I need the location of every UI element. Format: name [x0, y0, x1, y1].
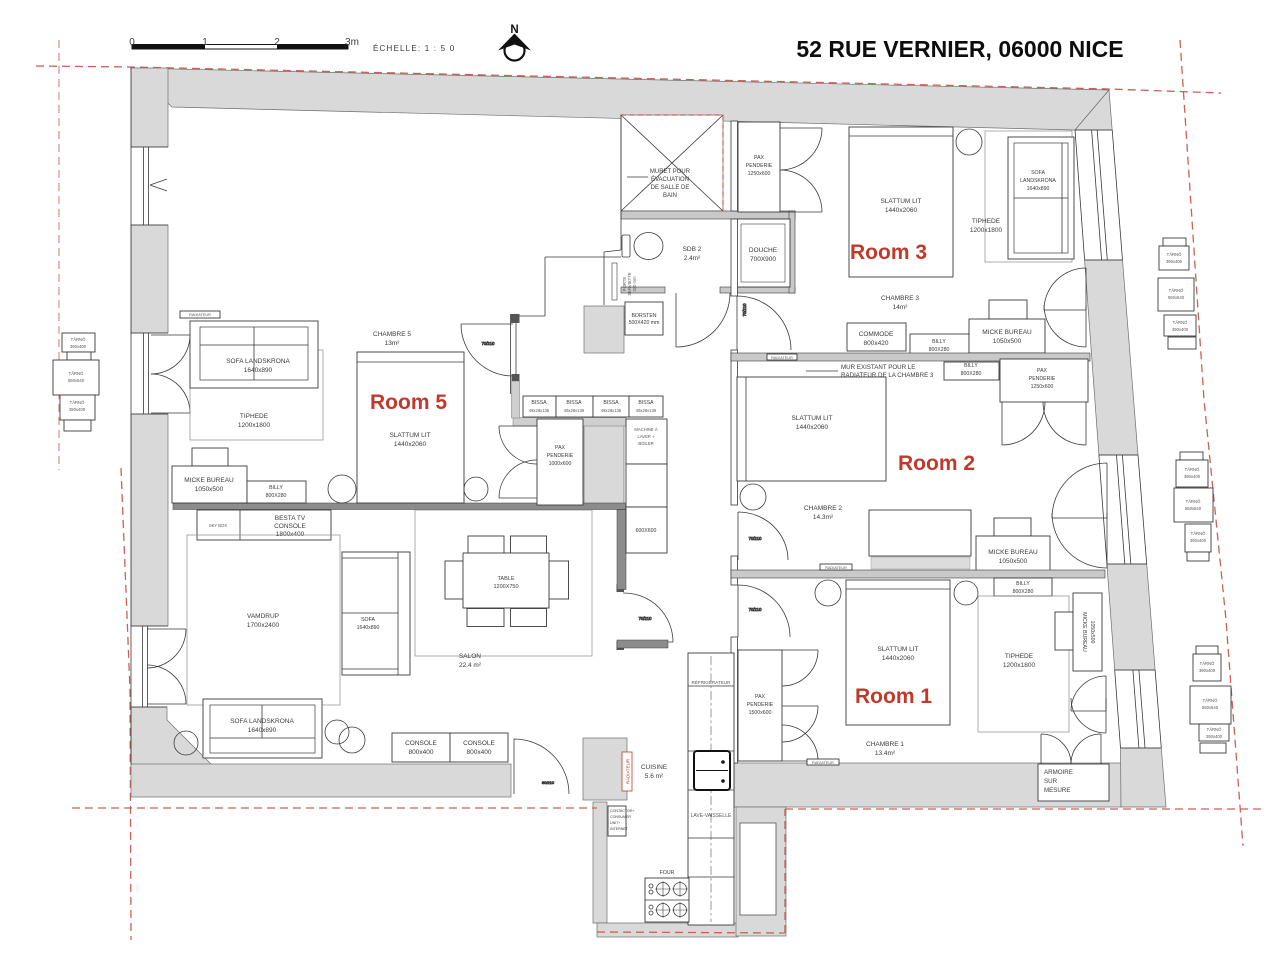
svg-text:TÄRNÖ: TÄRNÖ	[1207, 727, 1222, 732]
svg-text:TÄRNÖ: TÄRNÖ	[1169, 288, 1184, 293]
svg-text:TÄRNÖ: TÄRNÖ	[69, 371, 84, 376]
svg-text:ÉCHELLE: 1 : 5 0: ÉCHELLE: 1 : 5 0	[373, 44, 455, 53]
svg-text:800x420: 800x420	[864, 340, 889, 347]
svg-text:390x400: 390x400	[1166, 259, 1183, 264]
svg-text:BISSA: BISSA	[638, 400, 654, 406]
svg-text:MICKE BUREAU: MICKE BUREAU	[988, 549, 1038, 556]
svg-text:TÄRNÖ: TÄRNÖ	[71, 337, 86, 342]
svg-text:SKY BOX: SKY BOX	[209, 523, 228, 528]
svg-text:TÄRNÖ: TÄRNÖ	[1186, 499, 1201, 504]
svg-text:1250x600: 1250x600	[1031, 384, 1054, 390]
svg-text:70/210: 70/210	[749, 536, 762, 541]
svg-text:SLATTUM LIT: SLATTUM LIT	[877, 646, 918, 653]
svg-text:1000x600: 1000x600	[549, 461, 572, 467]
svg-text:52 RUE VERNIER, 06000 NICE: 52 RUE VERNIER, 06000 NICE	[796, 36, 1123, 62]
svg-text:1440x2060: 1440x2060	[796, 424, 829, 431]
svg-text:MUR EXISTANT POUR LE: MUR EXISTANT POUR LE	[841, 364, 915, 371]
svg-text:MURET POUR: MURET POUR	[650, 169, 691, 175]
svg-text:CUISINE: CUISINE	[641, 764, 668, 771]
svg-text:1640x890: 1640x890	[248, 727, 277, 734]
svg-text:BISSA: BISSA	[566, 400, 582, 406]
svg-text:22.4 m²: 22.4 m²	[459, 662, 482, 669]
svg-text:800x400: 800x400	[467, 749, 492, 756]
svg-text:1200x1800: 1200x1800	[1003, 662, 1036, 669]
svg-text:80/210: 80/210	[542, 780, 555, 785]
svg-text:1200x1800: 1200x1800	[238, 422, 271, 429]
svg-text:0: 0	[129, 37, 135, 48]
svg-text:1800x400: 1800x400	[276, 531, 305, 538]
svg-text:390x400: 390x400	[70, 344, 87, 349]
svg-text:RADIATEUR: RADIATEUR	[812, 761, 834, 765]
svg-text:SLATTUM LIT: SLATTUM LIT	[880, 198, 921, 205]
svg-text:PENDERIE: PENDERIE	[746, 163, 773, 169]
svg-text:BILLY: BILLY	[932, 339, 946, 345]
svg-text:LAVE-VAISSELLE: LAVE-VAISSELLE	[691, 813, 732, 819]
svg-text:BISSA: BISSA	[603, 400, 619, 406]
svg-text:1500x600: 1500x600	[749, 710, 772, 716]
svg-text:PENDERIE: PENDERIE	[747, 702, 774, 708]
svg-text:390x400: 390x400	[1190, 538, 1207, 543]
svg-text:TIPHEDE: TIPHEDE	[972, 218, 1001, 225]
svg-text:MICKE BUREAU: MICKE BUREAU	[982, 329, 1032, 336]
svg-text:1200X750: 1200X750	[493, 584, 518, 590]
svg-text:ÉVACUATION: ÉVACUATION	[651, 176, 689, 183]
svg-text:5.6 m²: 5.6 m²	[645, 773, 664, 780]
svg-text:2.4m²: 2.4m²	[684, 255, 701, 262]
svg-text:14.3m²: 14.3m²	[813, 514, 834, 521]
svg-text:49x28x135: 49x28x135	[636, 408, 657, 413]
svg-text:1050x500: 1050x500	[999, 558, 1028, 565]
svg-text:550x540: 550x540	[1185, 506, 1202, 511]
svg-text:PAX: PAX	[1037, 368, 1048, 374]
svg-text:MICKE BUREAU: MICKE BUREAU	[184, 477, 234, 484]
svg-text:MICKE BUREAU: MICKE BUREAU	[1081, 612, 1087, 652]
svg-text:RADIATEUR: RADIATEUR	[825, 566, 847, 570]
svg-text:70/210: 70/210	[749, 607, 762, 612]
svg-text:800X280: 800X280	[929, 347, 950, 353]
svg-text:CHAMBRE 1: CHAMBRE 1	[866, 741, 904, 748]
svg-text:Room 1: Room 1	[855, 685, 932, 708]
svg-text:1050x500: 1050x500	[1089, 621, 1095, 644]
svg-text:1050x500: 1050x500	[195, 486, 224, 493]
svg-text:CHAMBRE 3: CHAMBRE 3	[881, 295, 919, 302]
svg-text:TÄRNÖ: TÄRNÖ	[1203, 698, 1218, 703]
svg-text:PAX: PAX	[555, 445, 566, 451]
svg-text:14m²: 14m²	[893, 304, 909, 311]
svg-text:BAIN: BAIN	[663, 193, 677, 199]
svg-text:1440x2060: 1440x2060	[885, 207, 918, 214]
svg-text:2: 2	[274, 37, 280, 48]
svg-text:SOFA: SOFA	[1031, 170, 1045, 176]
svg-text:BESTA TV: BESTA TV	[275, 515, 306, 522]
svg-text:MESURE: MESURE	[1044, 787, 1070, 794]
svg-text:SALON: SALON	[459, 653, 481, 660]
svg-text:BILLY: BILLY	[269, 485, 283, 491]
svg-text:LANDSKRONA: LANDSKRONA	[1020, 178, 1056, 184]
svg-text:MACHINE À: MACHINE À	[634, 427, 657, 432]
svg-text:BILLY: BILLY	[1016, 581, 1030, 587]
svg-text:TIPHEDE: TIPHEDE	[240, 413, 269, 420]
svg-text:1: 1	[202, 37, 208, 48]
svg-text:CONSUMER: CONSUMER	[610, 815, 631, 819]
svg-text:SOFA LANDSKRONA: SOFA LANDSKRONA	[226, 358, 290, 365]
svg-text:13.4m²: 13.4m²	[875, 750, 896, 757]
svg-text:800X280: 800X280	[1013, 589, 1034, 595]
svg-text:49x28x135: 49x28x135	[601, 408, 622, 413]
svg-text:390x400: 390x400	[1172, 327, 1189, 332]
svg-text:Room 3: Room 3	[850, 241, 927, 264]
svg-text:Room 2: Room 2	[898, 452, 975, 475]
svg-text:TÄRNÖ: TÄRNÖ	[1167, 252, 1182, 257]
svg-text:1440x2060: 1440x2060	[394, 441, 427, 448]
svg-text:550x540: 550x540	[1202, 705, 1219, 710]
svg-text:SLATTUM LIT: SLATTUM LIT	[389, 432, 430, 439]
svg-text:1440x2060: 1440x2060	[882, 655, 915, 662]
svg-text:SLATTUM LIT: SLATTUM LIT	[791, 415, 832, 422]
svg-text:1640x890: 1640x890	[244, 367, 273, 374]
svg-text:SOFA: SOFA	[361, 617, 375, 623]
svg-text:INTERNET: INTERNET	[610, 827, 629, 831]
svg-text:DE SALLE DE: DE SALLE DE	[651, 185, 690, 191]
svg-text:COMMODE: COMMODE	[859, 331, 894, 338]
svg-text:PAX: PAX	[755, 694, 766, 700]
svg-text:BOILER: BOILER	[638, 441, 653, 446]
svg-text:SOFA LANDSKRONA: SOFA LANDSKRONA	[230, 718, 294, 725]
svg-text:FOUR: FOUR	[660, 870, 675, 876]
svg-text:700X900: 700X900	[750, 256, 776, 263]
svg-text:CONSOLE: CONSOLE	[405, 740, 437, 747]
svg-text:1050x500: 1050x500	[993, 338, 1022, 345]
svg-text:390x400: 390x400	[69, 407, 86, 412]
svg-text:VAMDRUP: VAMDRUP	[247, 613, 279, 620]
svg-text:UNIT+: UNIT+	[610, 821, 620, 825]
svg-text:1250x600: 1250x600	[748, 171, 771, 177]
svg-text:49x28x135: 49x28x135	[564, 408, 585, 413]
svg-text:1640x890: 1640x890	[357, 625, 380, 631]
svg-text:1640x890: 1640x890	[1027, 186, 1050, 192]
svg-text:BILLY: BILLY	[964, 363, 978, 369]
svg-text:BORSTEN: BORSTEN	[631, 313, 656, 319]
svg-text:RADIATEUR: RADIATEUR	[189, 313, 211, 317]
svg-text:390x400: 390x400	[1199, 668, 1216, 673]
svg-text:CONSOLE: CONSOLE	[463, 740, 495, 747]
svg-text:600X600: 600X600	[636, 528, 657, 534]
svg-text:500X420 mm: 500X420 mm	[629, 320, 660, 326]
svg-text:PENDERIE: PENDERIE	[1029, 376, 1056, 382]
svg-text:RÉFRIGÉRATEUR: RÉFRIGÉRATEUR	[692, 679, 732, 685]
svg-text:TÄRNÖ: TÄRNÖ	[1185, 467, 1200, 472]
svg-text:LAVER +: LAVER +	[637, 434, 655, 439]
svg-text:Room 5: Room 5	[370, 391, 447, 414]
svg-text:RADIATEUR: RADIATEUR	[771, 356, 793, 360]
svg-text:70/210: 70/210	[482, 341, 495, 346]
svg-text:PAX: PAX	[754, 155, 765, 161]
svg-text:BISSA: BISSA	[531, 400, 547, 406]
svg-text:390x400: 390x400	[1206, 734, 1223, 739]
svg-text:TÄRNÖ: TÄRNÖ	[70, 400, 85, 405]
svg-text:550x540: 550x540	[1168, 295, 1185, 300]
svg-text:CONSOLE: CONSOLE	[274, 523, 306, 530]
svg-text:PENDERIE: PENDERIE	[547, 453, 574, 459]
svg-text:TÄRNÖ: TÄRNÖ	[1200, 661, 1215, 666]
svg-text:SDB 2: SDB 2	[683, 246, 702, 253]
svg-text:1700x2400: 1700x2400	[247, 622, 280, 629]
svg-text:800X280: 800X280	[961, 371, 982, 377]
svg-text:70/210: 70/210	[639, 616, 652, 621]
svg-text:49x28x135: 49x28x135	[529, 408, 550, 413]
svg-text:TIPHEDE: TIPHEDE	[1005, 653, 1034, 660]
svg-text:DOUCHE: DOUCHE	[749, 247, 778, 254]
svg-text:800x400: 800x400	[409, 749, 434, 756]
svg-text:390x400: 390x400	[1184, 474, 1201, 479]
svg-text:CHAMBRE 2: CHAMBRE 2	[804, 505, 842, 512]
svg-text:1200x1800: 1200x1800	[970, 227, 1003, 234]
svg-text:3m: 3m	[345, 37, 359, 48]
svg-text:RADIATEUR: RADIATEUR	[626, 759, 631, 784]
svg-text:550x540: 550x540	[68, 378, 85, 383]
svg-text:320 mm: 320 mm	[632, 276, 637, 292]
svg-text:ARMOIRE: ARMOIRE	[1044, 769, 1073, 776]
svg-text:800X280: 800X280	[266, 493, 287, 499]
svg-text:CONTACTOR+: CONTACTOR+	[610, 809, 635, 813]
svg-text:70/210: 70/210	[742, 303, 747, 316]
svg-text:TÄRNÖ: TÄRNÖ	[1191, 531, 1206, 536]
svg-text:TABLE: TABLE	[497, 576, 514, 582]
svg-text:SUR: SUR	[1044, 778, 1058, 785]
svg-text:13m²: 13m²	[385, 340, 401, 347]
svg-text:CHAMBRE 5: CHAMBRE 5	[373, 331, 411, 338]
svg-text:TÄRNÖ: TÄRNÖ	[1173, 320, 1188, 325]
